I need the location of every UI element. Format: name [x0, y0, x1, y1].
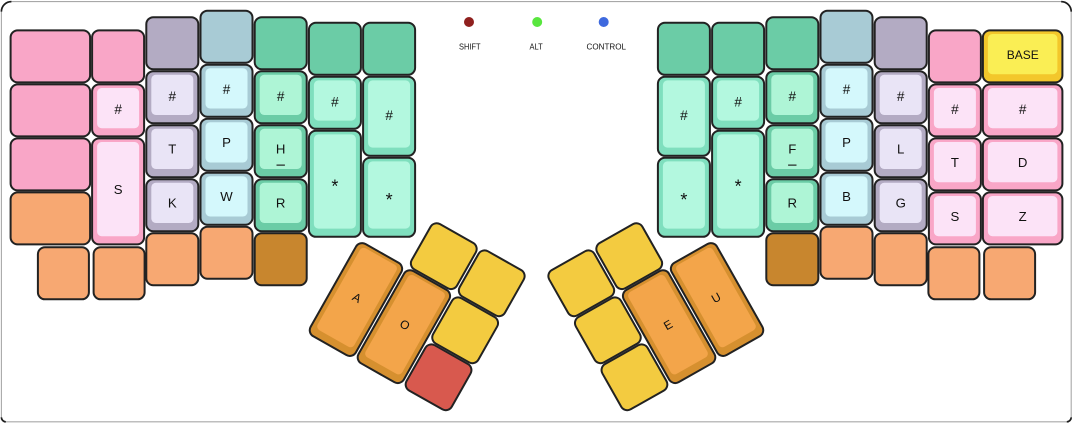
svg-text:S: S: [114, 182, 123, 197]
svg-text:ALT: ALT: [530, 42, 543, 52]
svg-text:#: #: [897, 89, 905, 104]
svg-text:K: K: [168, 196, 177, 211]
svg-text:#: #: [951, 102, 959, 117]
svg-text:#: #: [331, 94, 339, 109]
svg-text:G: G: [896, 196, 906, 211]
svg-text:R: R: [276, 196, 286, 211]
svg-text:BASE: BASE: [1007, 48, 1039, 62]
svg-text:#: #: [169, 89, 177, 104]
svg-text:#: #: [277, 89, 285, 104]
svg-text:T: T: [951, 155, 959, 170]
svg-text:F: F: [788, 142, 796, 157]
svg-text:Z: Z: [1019, 209, 1027, 224]
svg-text:L: L: [897, 142, 904, 157]
svg-text:*: *: [386, 190, 393, 210]
svg-text:#: #: [223, 82, 231, 97]
svg-text:#: #: [734, 94, 742, 109]
svg-text:CONTROL: CONTROL: [587, 42, 627, 52]
svg-text:*: *: [680, 190, 687, 210]
svg-text:*: *: [735, 176, 742, 196]
svg-text:#: #: [843, 82, 851, 97]
svg-text:D: D: [1018, 155, 1028, 170]
svg-text:#: #: [789, 89, 797, 104]
svg-text:T: T: [168, 142, 176, 157]
svg-text:#: #: [680, 108, 688, 123]
svg-text:*: *: [331, 176, 338, 196]
svg-text:B: B: [842, 189, 851, 204]
svg-text:H: H: [276, 142, 286, 157]
svg-text:W: W: [220, 189, 233, 204]
svg-text:P: P: [222, 135, 231, 150]
svg-text:S: S: [951, 209, 960, 224]
svg-text:#: #: [1019, 102, 1027, 117]
svg-text:R: R: [788, 196, 798, 211]
svg-text:#: #: [114, 102, 122, 117]
svg-text:#: #: [385, 108, 393, 123]
svg-text:SHIFT: SHIFT: [459, 42, 481, 52]
svg-text:P: P: [842, 135, 851, 150]
